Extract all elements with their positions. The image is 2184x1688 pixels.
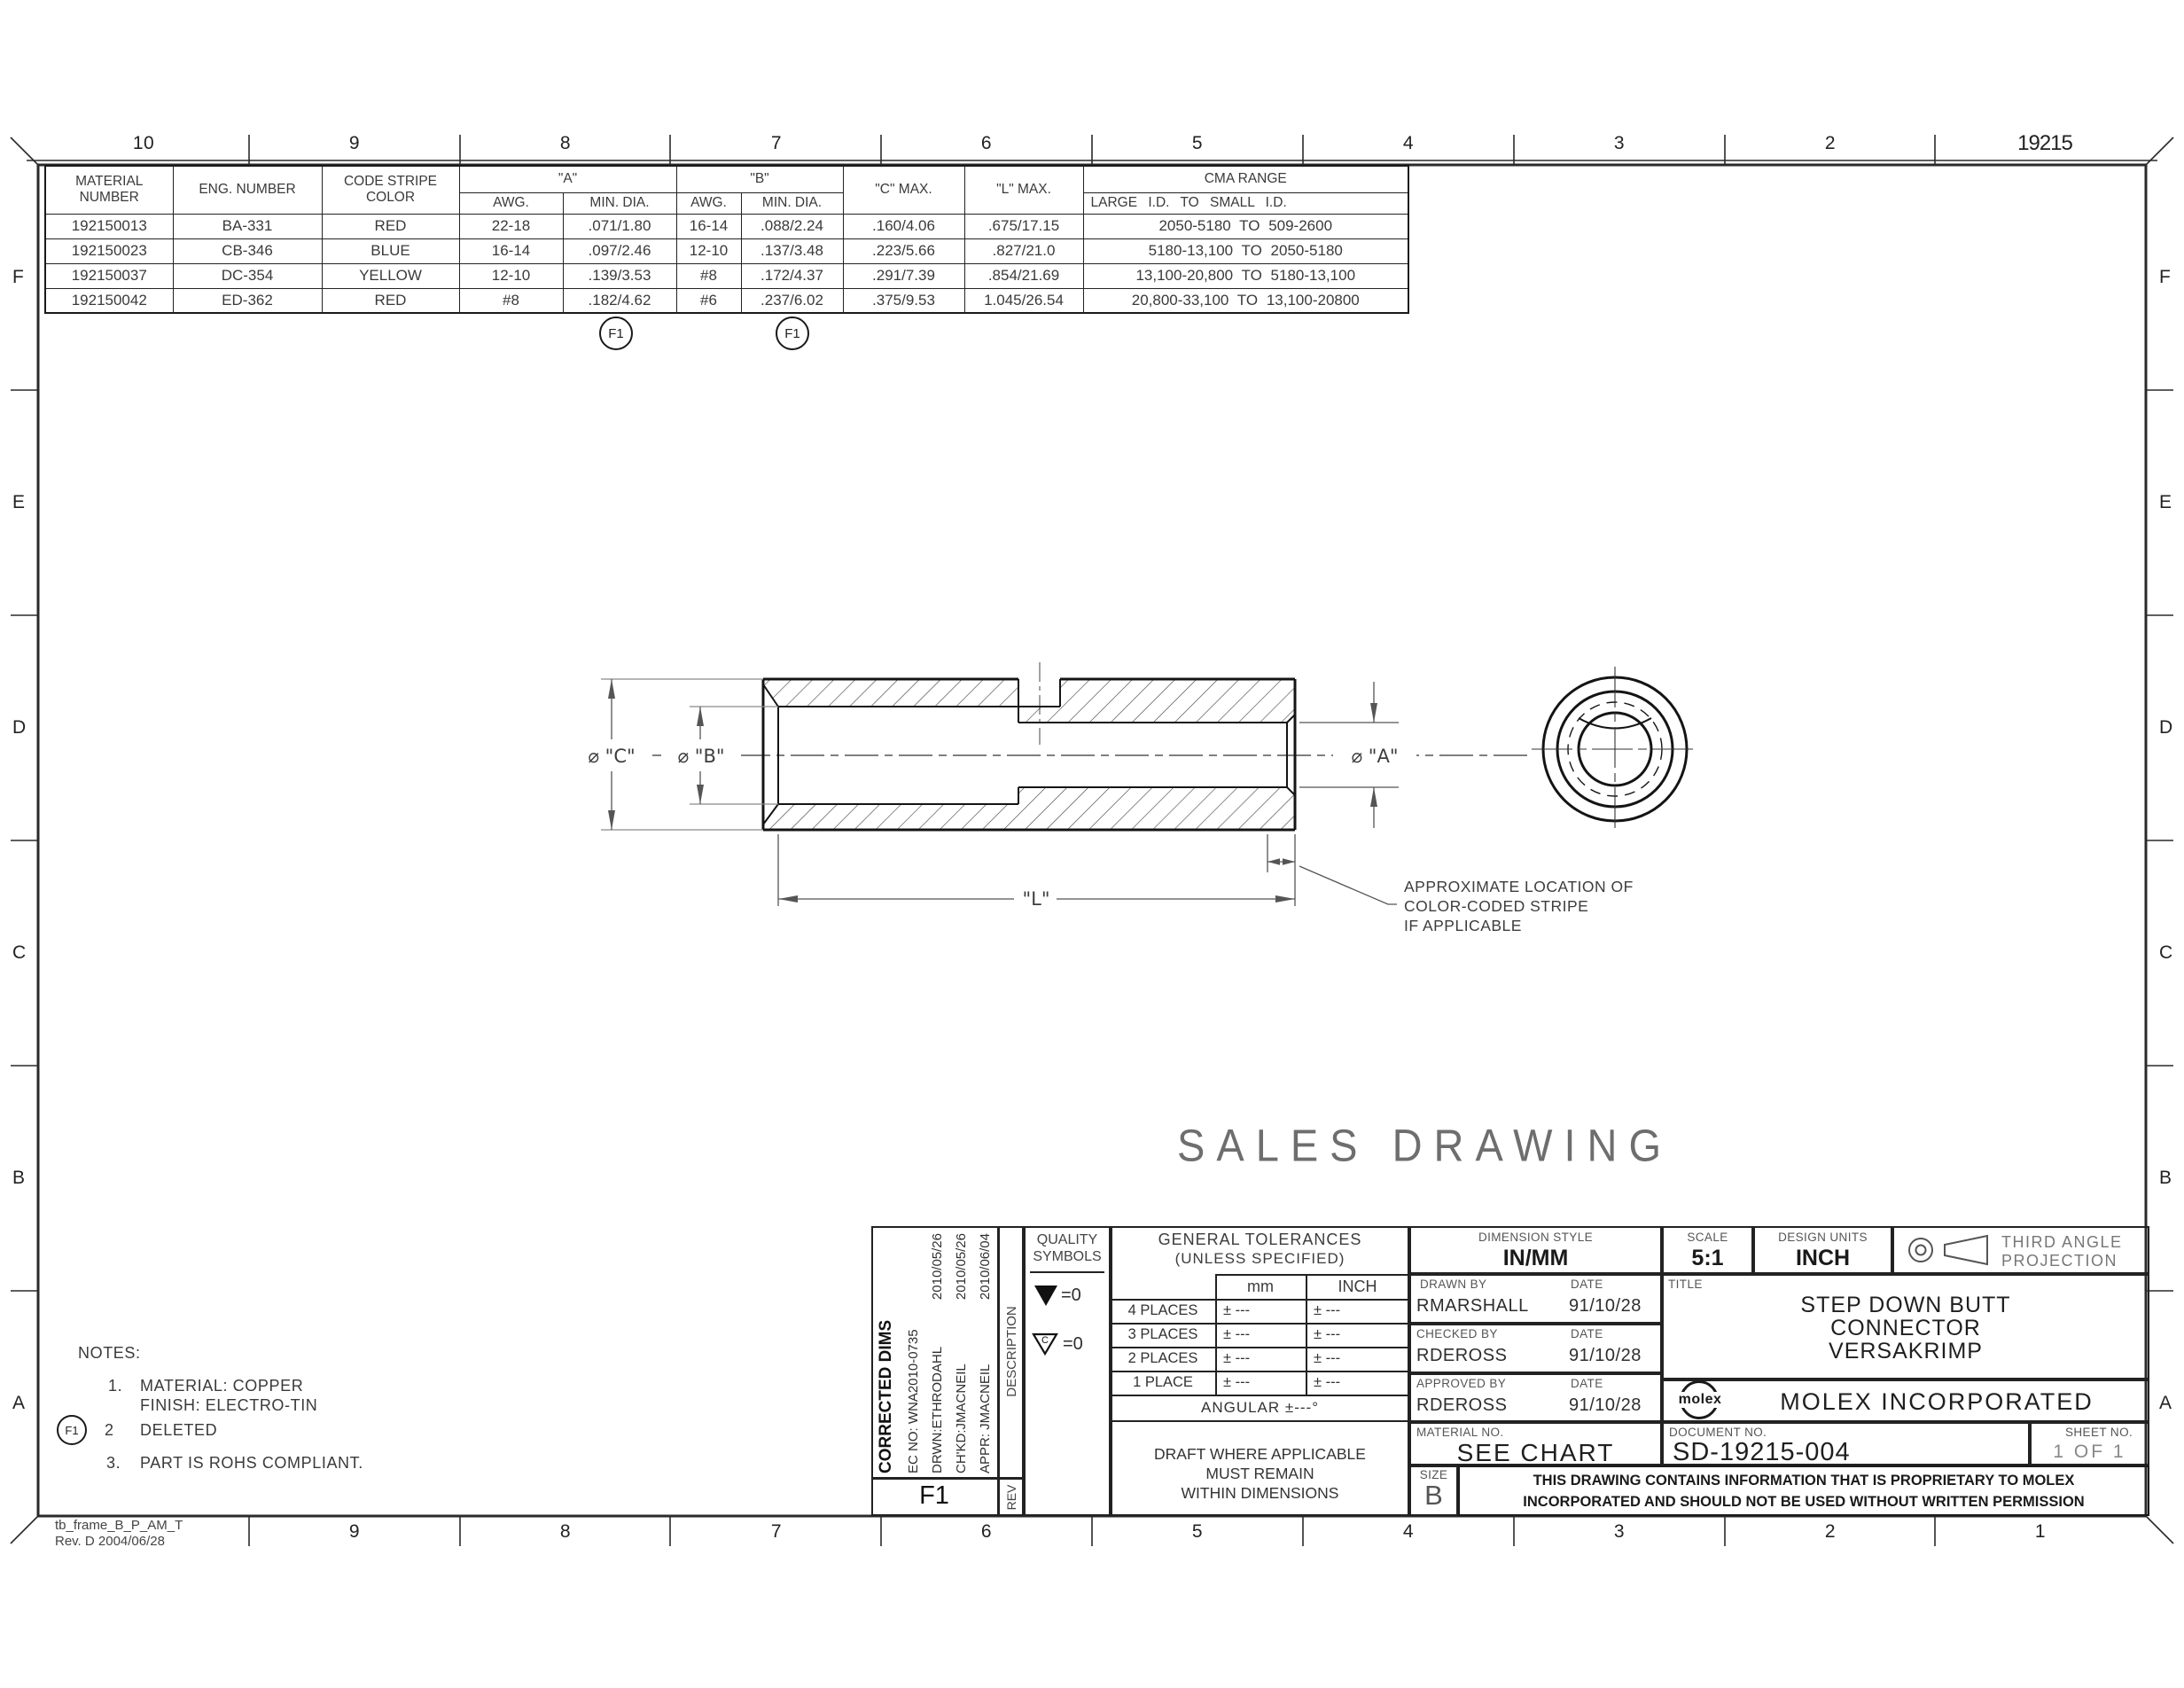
cell-cma: 2050-5180 TO 509-2600 xyxy=(1083,214,1408,238)
cell-stripe: BLUE xyxy=(322,238,459,263)
col-header-material: MATERIAL NUMBER xyxy=(45,166,173,214)
cell-l-max: .827/21.0 xyxy=(964,238,1083,263)
zone-bottom-1: 1 xyxy=(2035,1521,2046,1543)
tol-row-label: 3 PLACES xyxy=(1111,1326,1215,1343)
quality-symbol-1: =0 xyxy=(1034,1286,1081,1306)
col-header-c-max: "C" MAX. xyxy=(843,166,964,214)
filled-triangle-icon xyxy=(1034,1286,1057,1306)
checked-by-label: CHECKED BY xyxy=(1416,1327,1498,1340)
quality-title-line2: SYMBOLS xyxy=(1024,1249,1111,1265)
stripe-note-line3: IF APPLICABLE xyxy=(1404,917,1522,934)
tol-row-mm: ± --- xyxy=(1223,1374,1250,1391)
zone-bottom-5: 5 xyxy=(1192,1521,1203,1543)
table-row: 192150042 ED-362 RED #8 .182/4.62 #6 .23… xyxy=(45,288,1408,313)
table-row: 192150037 DC-354 YELLOW 12-10 .139/3.53 … xyxy=(45,263,1408,288)
scale-value: 5:1 xyxy=(1662,1246,1753,1271)
zone-top-3: 3 xyxy=(1614,133,1625,154)
tolerances-title-line2: (UNLESS SPECIFIED) xyxy=(1111,1250,1409,1268)
tol-draft-line2: MUST REMAIN xyxy=(1111,1465,1409,1483)
dim-label-a: ⌀ "A" xyxy=(1351,746,1398,767)
col-header-cma-sub: LARGE I.D. TO SMALL I.D. xyxy=(1083,192,1408,214)
connector-drawing: ⌀ "C" ⌀ "B" ⌀ "A" "L" APPROXIMATE LOCATI… xyxy=(532,621,1737,1002)
tol-row-mm: ± --- xyxy=(1223,1326,1250,1343)
tol-line xyxy=(1111,1420,1409,1422)
third-angle-projection-icon xyxy=(1899,1231,1998,1269)
revision-rev-id: F1 xyxy=(871,1481,997,1511)
table-row: 192150023 CB-346 BLUE 16-14 .097/2.46 12… xyxy=(45,238,1408,263)
projection-label-line2: PROJECTION xyxy=(2001,1252,2118,1270)
revision-flag-a: F1 xyxy=(599,316,633,350)
tol-draft-line3: WITHIN DIMENSIONS xyxy=(1111,1484,1409,1503)
molex-logo-text: molex xyxy=(1675,1392,1725,1408)
cell-b-awg: 16-14 xyxy=(676,214,741,238)
cell-a-awg: 16-14 xyxy=(459,238,563,263)
cell-b-min: .237/6.02 xyxy=(741,288,843,313)
zone-bottom-7: 7 xyxy=(771,1521,782,1543)
tol-row-label: 4 PLACES xyxy=(1111,1302,1215,1319)
sheet-no-label: SHEET NO. xyxy=(2065,1426,2133,1439)
zone-top-4: 4 xyxy=(1403,133,1414,154)
frame-id-rev: Rev. D 2004/06/28 xyxy=(55,1534,183,1550)
cell-eng: CB-346 xyxy=(173,238,322,263)
proprietary-line1: THIS DRAWING CONTAINS INFORMATION THAT I… xyxy=(1458,1473,2149,1489)
tolerances-title-line1: GENERAL TOLERANCES xyxy=(1111,1231,1409,1249)
note-2-num: 2 xyxy=(105,1421,114,1440)
spec-table: MATERIAL NUMBER ENG. NUMBER CODE STRIPE … xyxy=(44,165,1409,314)
cell-eng: BA-331 xyxy=(173,214,322,238)
projection-label-line1: THIRD ANGLE xyxy=(2001,1233,2123,1252)
checked-date-value: 91/10/28 xyxy=(1569,1346,1642,1366)
title-line3: VERSAKRIMP xyxy=(1662,1339,2149,1364)
tol-row-inch: ± --- xyxy=(1314,1326,1340,1343)
size-value: B xyxy=(1409,1480,1458,1512)
cell-c-max: .160/4.06 xyxy=(843,214,964,238)
tol-line xyxy=(1111,1371,1409,1372)
svg-text:C: C xyxy=(1041,1335,1049,1346)
quality-symbols-box xyxy=(1024,1226,1111,1516)
revision-checked: CH'KD:JMACNEIL xyxy=(954,1364,969,1473)
revision-drawn-date: 2010/05/26 xyxy=(930,1233,945,1300)
cell-b-min: .088/2.24 xyxy=(741,214,843,238)
col-header-b: "B" xyxy=(676,166,843,192)
cell-l-max: 1.045/26.54 xyxy=(964,288,1083,313)
zone-top-6: 6 xyxy=(981,133,992,154)
spec-header-row-1: MATERIAL NUMBER ENG. NUMBER CODE STRIPE … xyxy=(45,166,1408,192)
zone-bottom-4: 4 xyxy=(1403,1521,1414,1543)
quality-title-line1: QUALITY xyxy=(1024,1232,1111,1248)
zone-right-a: A xyxy=(2159,1393,2172,1414)
revision-flag-b: F1 xyxy=(776,316,809,350)
zone-bottom-8: 8 xyxy=(560,1521,571,1543)
col-header-b-min: MIN. DIA. xyxy=(741,192,843,214)
tol-col-mm: mm xyxy=(1215,1278,1306,1296)
tol-draft-line1: DRAFT WHERE APPLICABLE xyxy=(1111,1445,1409,1464)
revision-col-description-text: DESCRIPTION xyxy=(1004,1226,1019,1477)
zone-left-c: C xyxy=(12,942,26,964)
cell-material: 192150013 xyxy=(45,214,173,238)
approved-date-label: DATE xyxy=(1571,1377,1603,1390)
drawn-date-value: 91/10/28 xyxy=(1569,1296,1642,1317)
table-row: 192150013 BA-331 RED 22-18 .071/1.80 16-… xyxy=(45,214,1408,238)
zone-bottom-9: 9 xyxy=(349,1521,360,1543)
cell-cma: 13,100-20,800 TO 5180-13,100 xyxy=(1083,263,1408,288)
stripe-note-line1: APPROXIMATE LOCATION OF xyxy=(1404,878,1634,895)
approved-by-value: RDEROSS xyxy=(1416,1395,1507,1416)
zone-top-10: 10 xyxy=(133,133,154,154)
col-header-stripe: CODE STRIPE COLOR xyxy=(322,166,459,214)
cell-l-max: .854/21.69 xyxy=(964,263,1083,288)
sheet-no-value: 1 OF 1 xyxy=(2030,1442,2149,1463)
drawn-by-value: RMARSHALL xyxy=(1416,1296,1529,1317)
note-1-line2: FINISH: ELECTRO-TIN xyxy=(140,1396,317,1415)
revision-checked-date: 2010/05/26 xyxy=(954,1233,969,1300)
cell-b-min: .172/4.37 xyxy=(741,263,843,288)
cell-b-awg: 12-10 xyxy=(676,238,741,263)
notes-title: NOTES: xyxy=(78,1344,141,1363)
quality-underline xyxy=(1030,1271,1104,1273)
cell-c-max: .223/5.66 xyxy=(843,238,964,263)
end-view xyxy=(1532,667,1698,832)
note-2-text: DELETED xyxy=(140,1421,217,1440)
tol-row-label: 2 PLACES xyxy=(1111,1350,1215,1367)
cell-a-min: .097/2.46 xyxy=(563,238,676,263)
tol-line xyxy=(1215,1274,1409,1276)
note-2-flag-text: F1 xyxy=(65,1424,78,1437)
watermark-sales-drawing: SALES DRAWING xyxy=(1177,1119,1673,1171)
cell-a-min: .071/1.80 xyxy=(563,214,676,238)
cell-eng: ED-362 xyxy=(173,288,322,313)
stripe-note: APPROXIMATE LOCATION OF COLOR-CODED STRI… xyxy=(1404,878,1634,934)
revision-drawn: DRWN:ETHRODAHL xyxy=(930,1347,945,1473)
stripe-note-line2: COLOR-CODED STRIPE xyxy=(1404,897,1588,915)
cell-a-min: .182/4.62 xyxy=(563,288,676,313)
cell-b-awg: #6 xyxy=(676,288,741,313)
revision-description: CORRECTED DIMS xyxy=(877,1320,896,1473)
revision-col-description: DESCRIPTION xyxy=(999,1226,1024,1477)
zone-top-7: 7 xyxy=(771,133,782,154)
cell-l-max: .675/17.15 xyxy=(964,214,1083,238)
zone-right-d: D xyxy=(2159,717,2172,738)
note-1-line1: MATERIAL: COPPER xyxy=(140,1377,303,1395)
material-no-value: SEE CHART xyxy=(1409,1439,1662,1467)
title-label: TITLE xyxy=(1668,1278,1703,1291)
note-2-flag: F1 xyxy=(57,1415,87,1445)
molex-logo: molex xyxy=(1677,1383,1723,1418)
drawn-by-label: DRAWN BY xyxy=(1420,1278,1486,1291)
revision-col-rev: REV xyxy=(999,1479,1024,1516)
zone-left-f: F xyxy=(12,267,24,288)
col-header-a: "A" xyxy=(459,166,676,192)
dim-label-b: ⌀ "B" xyxy=(677,746,724,767)
title-line1: STEP DOWN BUTT xyxy=(1662,1293,2149,1318)
outlined-triangle-c-icon: C xyxy=(1031,1332,1059,1356)
col-header-cma: CMA RANGE xyxy=(1083,166,1408,192)
dim-label-l: "L" xyxy=(1022,888,1049,910)
document-no-label: DOCUMENT NO. xyxy=(1669,1426,1767,1439)
zone-left-a: A xyxy=(12,1393,25,1414)
drawn-date-label: DATE xyxy=(1571,1278,1603,1291)
tol-angular: ANGULAR ±---° xyxy=(1111,1399,1409,1417)
zone-bottom-2: 2 xyxy=(1825,1521,1836,1543)
cell-a-awg: 12-10 xyxy=(459,263,563,288)
tol-row-mm: ± --- xyxy=(1223,1302,1250,1319)
zone-right-f: F xyxy=(2159,267,2171,288)
revision-flag-b-text: F1 xyxy=(784,326,800,341)
cell-c-max: .291/7.39 xyxy=(843,263,964,288)
tol-row-mm: ± --- xyxy=(1223,1350,1250,1367)
title-line2: CONNECTOR xyxy=(1662,1316,2149,1341)
col-header-eng: ENG. NUMBER xyxy=(173,166,322,214)
tol-row-inch: ± --- xyxy=(1314,1302,1340,1319)
material-no-label: MATERIAL NO. xyxy=(1416,1426,1504,1439)
drawing-sheet: 10 9 8 7 6 5 4 3 2 19215 9 8 7 6 5 4 3 2… xyxy=(0,0,2184,1688)
zone-left-d: D xyxy=(12,717,26,738)
revision-ec-no: EC NO: WNA2010-0735 xyxy=(906,1329,921,1473)
design-units-label: DESIGN UNITS xyxy=(1753,1231,1892,1244)
dimension-style-value: IN/MM xyxy=(1409,1246,1662,1271)
cell-b-min: .137/3.48 xyxy=(741,238,843,263)
tol-line xyxy=(1111,1323,1409,1325)
cell-stripe: RED xyxy=(322,214,459,238)
tol-line xyxy=(1111,1299,1409,1301)
revision-entries: CORRECTED DIMS EC NO: WNA2010-0735 DRWN:… xyxy=(871,1226,997,1477)
dimension-style-label: DIMENSION STYLE xyxy=(1409,1231,1662,1244)
tol-line xyxy=(1111,1347,1409,1348)
cell-material: 192150042 xyxy=(45,288,173,313)
quality-symbol-2: C =0 xyxy=(1031,1332,1083,1356)
col-header-b-awg: AWG. xyxy=(676,192,741,214)
cell-stripe: YELLOW xyxy=(322,263,459,288)
scale-label: SCALE xyxy=(1662,1231,1753,1244)
dim-label-c: ⌀ "C" xyxy=(588,746,635,767)
zone-right-e: E xyxy=(2159,492,2172,513)
part-number-corner: 19215 xyxy=(2017,131,2072,156)
revision-approved-date: 2010/06/04 xyxy=(978,1233,993,1300)
zone-left-e: E xyxy=(12,492,25,513)
tol-row-label: 1 PLACE xyxy=(1111,1374,1215,1391)
quality-symbol-2-value: =0 xyxy=(1063,1334,1083,1355)
cell-material: 192150037 xyxy=(45,263,173,288)
col-header-l-max: "L" MAX. xyxy=(964,166,1083,214)
revision-col-rev-text: REV xyxy=(1004,1479,1018,1516)
note-1-num: 1. xyxy=(108,1377,122,1395)
cell-a-min: .139/3.53 xyxy=(563,263,676,288)
cell-a-awg: 22-18 xyxy=(459,214,563,238)
checked-date-label: DATE xyxy=(1571,1327,1603,1340)
zone-bottom-3: 3 xyxy=(1614,1521,1625,1543)
cell-material: 192150023 xyxy=(45,238,173,263)
frame-id: tb_frame_B_P_AM_T Rev. D 2004/06/28 xyxy=(55,1518,183,1550)
cell-cma: 5180-13,100 TO 2050-5180 xyxy=(1083,238,1408,263)
col-header-a-awg: AWG. xyxy=(459,192,563,214)
zone-left-b: B xyxy=(12,1168,25,1189)
document-no-value: SD-19215-004 xyxy=(1673,1438,1851,1467)
tol-line xyxy=(1111,1395,1409,1396)
col-header-a-min: MIN. DIA. xyxy=(563,192,676,214)
company-name: MOLEX INCORPORATED xyxy=(1733,1388,2141,1416)
note-3-text: PART IS ROHS COMPLIANT. xyxy=(140,1454,363,1473)
quality-symbol-1-value: =0 xyxy=(1061,1286,1081,1306)
design-units-value: INCH xyxy=(1753,1246,1892,1271)
approved-by-label: APPROVED BY xyxy=(1416,1377,1506,1390)
cell-a-awg: #8 xyxy=(459,288,563,313)
revision-approved: APPR: JMACNEIL xyxy=(978,1364,993,1473)
tol-row-inch: ± --- xyxy=(1314,1374,1340,1391)
zone-top-2: 2 xyxy=(1825,133,1836,154)
zone-bottom-6: 6 xyxy=(981,1521,992,1543)
proprietary-line2: INCORPORATED AND SHOULD NOT BE USED WITH… xyxy=(1458,1494,2149,1511)
zone-right-b: B xyxy=(2159,1168,2172,1189)
revision-flag-a-text: F1 xyxy=(608,326,624,341)
note-3-num: 3. xyxy=(106,1454,121,1473)
cell-cma: 20,800-33,100 TO 13,100-20800 xyxy=(1083,288,1408,313)
tol-col-inch: INCH xyxy=(1306,1278,1409,1296)
approved-date-value: 91/10/28 xyxy=(1569,1395,1642,1416)
zone-top-9: 9 xyxy=(349,133,360,154)
checked-by-value: RDEROSS xyxy=(1416,1346,1507,1366)
frame-id-name: tb_frame_B_P_AM_T xyxy=(55,1518,183,1534)
cell-stripe: RED xyxy=(322,288,459,313)
tol-row-inch: ± --- xyxy=(1314,1350,1340,1367)
cell-eng: DC-354 xyxy=(173,263,322,288)
zone-right-c: C xyxy=(2159,942,2172,964)
cell-c-max: .375/9.53 xyxy=(843,288,964,313)
cell-b-awg: #8 xyxy=(676,263,741,288)
zone-top-8: 8 xyxy=(560,133,571,154)
zone-top-5: 5 xyxy=(1192,133,1203,154)
